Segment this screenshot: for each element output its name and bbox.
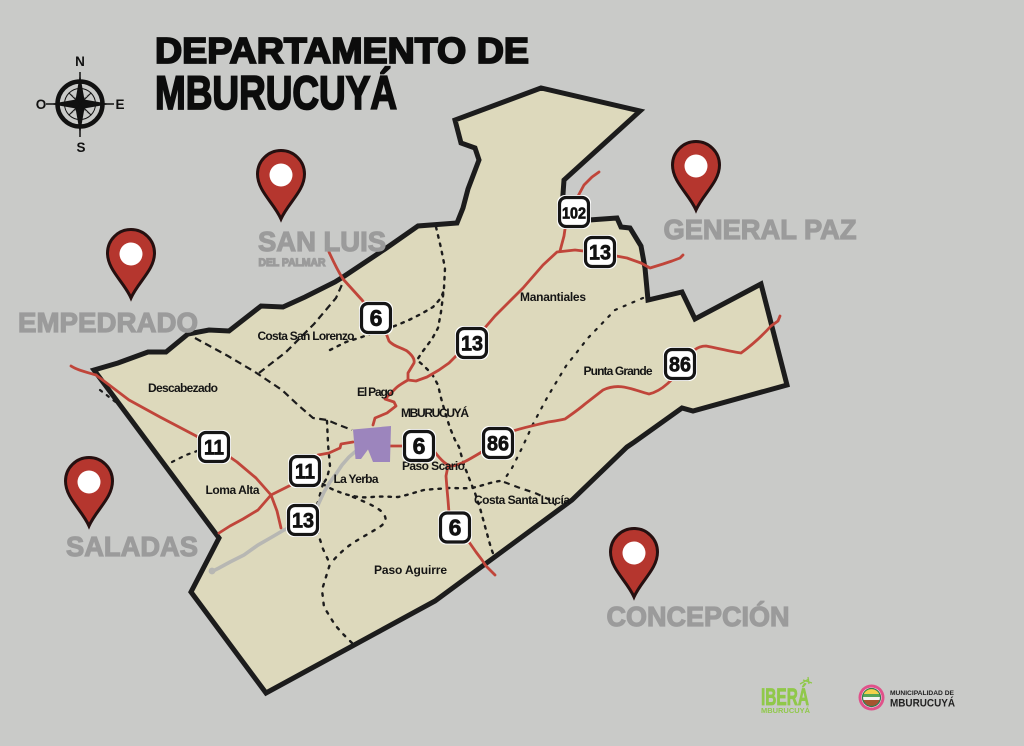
svg-text:11: 11 [295, 461, 315, 484]
svg-text:S: S [76, 140, 85, 155]
svg-text:6: 6 [413, 433, 426, 459]
svg-text:13: 13 [589, 242, 611, 265]
svg-text:86: 86 [669, 354, 691, 377]
svg-text:13: 13 [292, 510, 314, 533]
svg-text:La Yerba: La Yerba [334, 472, 379, 486]
svg-text:MBURUCUYÁ: MBURUCUYÁ [890, 697, 955, 710]
svg-text:GENERAL PAZ: GENERAL PAZ [664, 214, 857, 245]
svg-text:6: 6 [370, 305, 383, 331]
svg-text:86: 86 [487, 433, 509, 456]
svg-text:SAN LUIS: SAN LUIS [258, 226, 386, 257]
svg-text:Manantiales: Manantiales [520, 290, 586, 304]
svg-text:O: O [36, 97, 47, 112]
svg-text:CONCEPCIÓN: CONCEPCIÓN [607, 601, 790, 632]
svg-text:MBURUCUYÁ: MBURUCUYÁ [155, 66, 397, 119]
svg-text:6: 6 [449, 515, 462, 541]
svg-text:Costa San Lorenzo: Costa San Lorenzo [258, 329, 355, 343]
svg-text:E: E [115, 97, 124, 112]
svg-text:13: 13 [461, 333, 483, 356]
svg-text:MBURUCUYÁ: MBURUCUYÁ [401, 405, 469, 420]
svg-text:Costa Santa Lucía: Costa Santa Lucía [474, 493, 570, 507]
svg-text:El Pago: El Pago [357, 385, 394, 399]
svg-text:EMPEDRADO: EMPEDRADO [18, 307, 198, 338]
svg-text:Paso Aguirre: Paso Aguirre [374, 563, 447, 577]
svg-text:DEL PALMAR: DEL PALMAR [259, 257, 326, 269]
svg-text:Loma Alta: Loma Alta [206, 483, 260, 497]
svg-text:11: 11 [204, 437, 224, 460]
svg-text:DEPARTAMENTO DE: DEPARTAMENTO DE [155, 30, 529, 71]
svg-text:102: 102 [562, 206, 586, 223]
svg-text:Punta Grande: Punta Grande [584, 364, 653, 378]
svg-text:Descabezado: Descabezado [148, 381, 218, 395]
svg-text:MUNICIPALIDAD DE: MUNICIPALIDAD DE [890, 690, 954, 697]
svg-text:MBURUCUYÁ: MBURUCUYÁ [761, 706, 811, 715]
svg-text:SALADAS: SALADAS [66, 531, 198, 562]
svg-text:N: N [75, 54, 85, 69]
